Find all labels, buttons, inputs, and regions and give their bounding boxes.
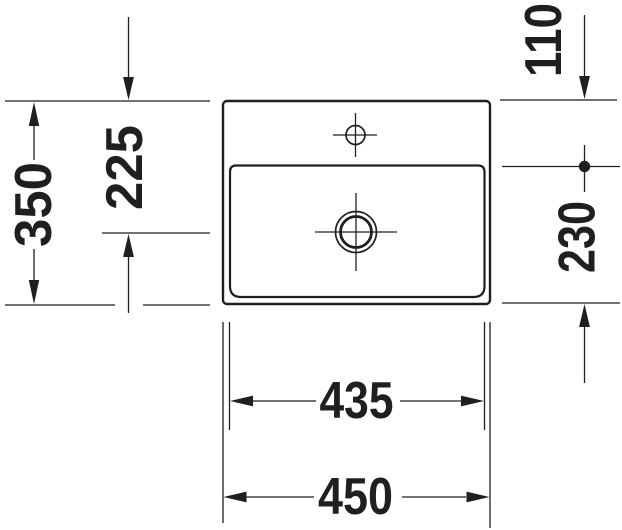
arrow-up-icon <box>123 234 134 257</box>
dimension-435: 435 <box>230 372 484 430</box>
dimension-110: 110 <box>515 3 590 99</box>
washbasin-bowl-outline <box>230 166 485 298</box>
dimension-225: 225 <box>96 17 154 313</box>
arrow-left-icon <box>230 396 253 407</box>
dim-225-label: 225 <box>96 125 154 210</box>
arrow-down-icon <box>123 77 134 100</box>
drain <box>315 193 397 271</box>
washbasin-dimension-diagram: 350 225 110 230 435 450 <box>0 0 622 530</box>
dimension-230: 230 <box>549 201 607 383</box>
arrow-left-icon <box>224 492 247 503</box>
dimension-450: 450 <box>224 468 490 526</box>
washbasin-body <box>223 101 490 304</box>
dim-450-label: 450 <box>318 468 393 526</box>
faucet-hole <box>333 113 377 157</box>
reference-dot <box>579 161 590 172</box>
drawing-canvas: 350 225 110 230 435 450 <box>0 0 622 530</box>
dimension-350: 350 <box>5 102 63 304</box>
dim-230-label: 230 <box>549 201 607 273</box>
arrow-right-icon <box>461 396 484 407</box>
dim-110-label: 110 <box>515 3 573 77</box>
arrow-down-icon <box>579 76 590 99</box>
dim-350-label: 350 <box>5 162 63 247</box>
dim-435-label: 435 <box>320 372 394 430</box>
arrow-up-icon <box>579 304 590 327</box>
arrow-down-icon <box>29 280 39 304</box>
arrow-up-icon <box>29 102 39 126</box>
arrow-right-icon <box>467 492 490 503</box>
